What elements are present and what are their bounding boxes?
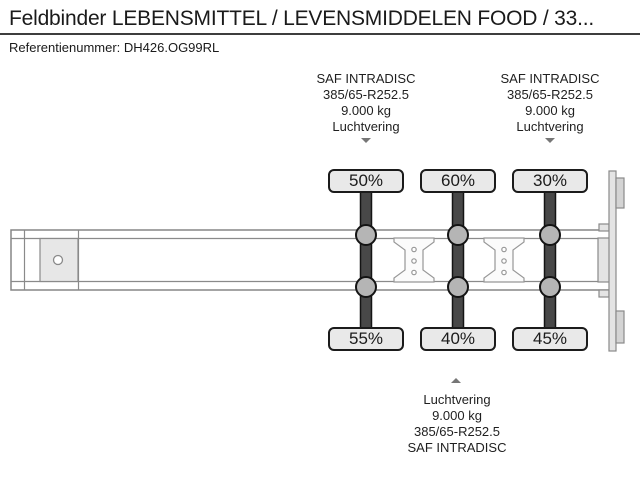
load-label-axle2-top: 60% xyxy=(420,169,496,193)
load-label-axle2-bottom: 40% xyxy=(420,327,496,351)
rear-bumper xyxy=(598,171,624,351)
spec-line-manufacturer: SAF INTRADISC xyxy=(347,440,567,456)
rear-bottom-bracket xyxy=(599,290,609,297)
kingpin xyxy=(54,256,63,265)
axle-bar xyxy=(545,191,556,329)
up-arrow-icon xyxy=(451,378,461,383)
spec-block-axle2: Luchtvering 9.000 kg 385/65-R252.5 SAF I… xyxy=(347,392,567,456)
load-label-axle3-top: 30% xyxy=(512,169,588,193)
wheel-hub xyxy=(540,277,560,297)
spec-line-suspension: Luchtvering xyxy=(347,392,567,408)
kingpin-plate xyxy=(40,239,78,282)
rear-top-pad xyxy=(616,178,624,208)
wheel-hub xyxy=(356,277,376,297)
rear-vertical-bar xyxy=(609,171,616,351)
wheel-hub xyxy=(448,225,468,245)
wheel-hub xyxy=(448,277,468,297)
rear-bottom-pad xyxy=(616,311,624,343)
axle-bar xyxy=(361,191,372,329)
load-label-axle1-bottom: 55% xyxy=(328,327,404,351)
spec-line-tyre-size: 385/65-R252.5 xyxy=(347,424,567,440)
load-label-axle3-bottom: 45% xyxy=(512,327,588,351)
axle-bar xyxy=(453,191,464,329)
rear-top-bracket xyxy=(599,224,609,231)
trailer-axle-diagram-page: Feldbinder LEBENSMITTEL / LEVENSMIDDELEN… xyxy=(0,0,640,480)
wheel-hub xyxy=(540,225,560,245)
spec-line-capacity: 9.000 kg xyxy=(347,408,567,424)
wheel-hub xyxy=(356,225,376,245)
load-label-axle1-top: 50% xyxy=(328,169,404,193)
